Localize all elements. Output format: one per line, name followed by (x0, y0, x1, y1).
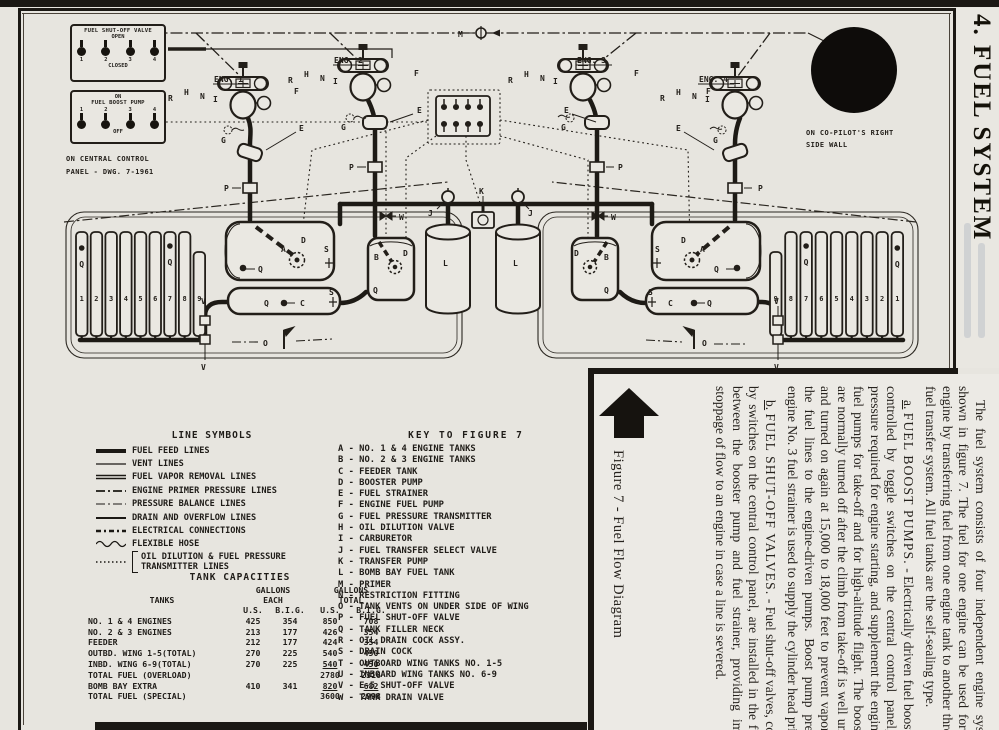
key-item: D - BOOSTER PUMP (338, 478, 594, 489)
toggle-knob (77, 120, 86, 129)
svg-text:N: N (200, 92, 205, 101)
balance-line-sample (96, 500, 126, 508)
primer-line-sample (96, 487, 126, 495)
svg-text:F: F (706, 87, 711, 96)
callout-Q: Q (714, 265, 719, 274)
svg-text:G: G (561, 123, 566, 132)
svg-text:3: 3 (109, 295, 113, 303)
legend-item: PRESSURE BALANCE LINES (96, 498, 328, 511)
svg-text:I: I (333, 77, 338, 86)
svg-text:P: P (618, 163, 623, 172)
callout-L: L (513, 259, 518, 268)
callout-Q: Q (707, 299, 712, 308)
callout-A: A (281, 245, 286, 254)
fuel-shutoff-valve-panel: FUEL SHUT-OFF VALVE OPEN 1 2 3 4 CLOSED (70, 24, 166, 82)
toggle-knob (126, 47, 135, 56)
engine-2-label: ENG. 2 (334, 56, 363, 65)
copilot-note-line2: SIDE WALL (806, 139, 894, 151)
shutoff-closed-label: CLOSED (108, 63, 127, 69)
capacities-row: TOTAL FUEL (OVERLOAD)27802316 (88, 670, 392, 681)
callout-S: S (655, 245, 660, 254)
legend-item: FUEL VAPOR REMOVAL LINES (96, 471, 328, 484)
svg-text:R: R (660, 94, 665, 103)
tank-capacities-table: TANK CAPACITIES GALLONS GALLONS TANKS EA… (88, 572, 392, 702)
legend-item: DRAIN AND OVERFLOW LINES (96, 511, 328, 524)
transmitter-line-sample (96, 558, 126, 566)
svg-text:G: G (341, 123, 346, 132)
vent-line-sample (96, 460, 126, 468)
callout-S: S (648, 288, 653, 297)
toggle-knob (150, 120, 159, 129)
capacities-title: TANK CAPACITIES (88, 572, 392, 583)
svg-text:G: G (221, 136, 226, 145)
right-wing-tanks (770, 232, 903, 336)
capacities-row: OUTBD. WING 1-5(TOTAL)270225540450 (88, 648, 392, 659)
engine-1-icon (218, 62, 271, 119)
boost-toggle-2: 2 (101, 106, 110, 129)
svg-text:H: H (676, 88, 681, 97)
capacities-row: NO. 1 & 4 ENGINES425354850708 (88, 616, 392, 627)
callout-V: V (774, 297, 779, 306)
callout-J: J (428, 209, 433, 218)
svg-text:Q: Q (167, 258, 172, 267)
primer-arrowhead (492, 30, 500, 37)
fuel-boost-pump-panel: ON FUEL BOOST PUMP 1 2 3 4 OFF (70, 90, 166, 144)
key-item: H - OIL DILUTION VALVE (338, 523, 594, 534)
engine-4-icon (710, 62, 763, 119)
callout-V: V (774, 363, 779, 372)
svg-text:4: 4 (850, 295, 854, 303)
callout-V: V (201, 363, 206, 372)
paragraph-shutoff-valves: b. FUEL SHUT-OFF VALVES. - Fuel shut-off… (712, 386, 778, 730)
svg-text:8: 8 (182, 295, 186, 303)
svg-text:Q: Q (895, 260, 900, 269)
tank-A-left (225, 222, 334, 280)
paragraph-intro: The fuel system consists of four indepen… (922, 386, 988, 730)
svg-text:5: 5 (138, 295, 142, 303)
svg-text:6: 6 (819, 295, 823, 303)
svg-text:R: R (168, 94, 173, 103)
svg-text:G: G (713, 136, 718, 145)
tank-C-left (228, 288, 340, 314)
callout-B: B (604, 253, 609, 262)
capacities-header-groups: TANKS EACH TOTAL (88, 595, 392, 605)
svg-text:Q: Q (804, 258, 809, 267)
copilot-note: ON CO-PILOT'S RIGHT SIDE WALL (806, 127, 894, 151)
callout-M: M (458, 30, 463, 39)
vapor-line-sample (96, 473, 126, 481)
transfer-control-box (428, 90, 500, 144)
engine-3-label: ENG. 3 (577, 56, 606, 65)
callout-O: O (263, 339, 268, 348)
key-item: J - FUEL TRANSFER SELECT VALVE (338, 546, 594, 557)
bracket-glyph (132, 551, 138, 573)
legend-item-oil-dilution: OIL DILUTION & FUEL PRESSURE TRANSMITTER… (96, 551, 328, 573)
callout-D: D (681, 236, 686, 245)
svg-text:7: 7 (804, 295, 808, 303)
rotated-text-quadrant: Figure 7 - Fuel Flow Diagram The fuel sy… (594, 374, 999, 730)
svg-text:F: F (294, 87, 299, 96)
capacities-row: BOMB BAY EXTRA410341820682 (88, 681, 392, 692)
toggle-knob (101, 47, 110, 56)
svg-text:N: N (540, 74, 545, 83)
svg-text:H: H (304, 70, 309, 79)
key-item: I - CARBURETOR (338, 534, 594, 545)
callout-W: W (611, 213, 616, 222)
panel-caption-line2: PANEL - DWG. 7-1961 (66, 166, 154, 179)
panel-caption-line1: ON CENTRAL CONTROL (66, 153, 154, 166)
oil-dilution-label: OIL DILUTION & FUEL PRESSURE TRANSMITTER… (141, 552, 286, 573)
figure-caption: Figure 7 - Fuel Flow Diagram (609, 450, 626, 638)
svg-text:N: N (692, 92, 697, 101)
key-item: E - FUEL STRAINER (338, 489, 594, 500)
svg-text:7: 7 (168, 295, 172, 303)
boost-toggle-1: 1 (77, 106, 86, 129)
key-item: G - FUEL PRESSURE TRANSMITTER (338, 512, 594, 523)
svg-text:I: I (213, 95, 218, 104)
primer-fitting (467, 26, 486, 40)
shutoff-toggle-4: 4 (150, 40, 159, 63)
callout-K: K (479, 187, 484, 196)
boost-toggle-4: 4 (150, 106, 159, 129)
svg-text:1: 1 (80, 295, 84, 303)
line-symbols-legend: LINE SYMBOLS FUEL FEED LINES VENT LINES … (96, 430, 328, 573)
boost-toggles: 1 2 3 4 (77, 106, 159, 129)
svg-text:Q: Q (79, 260, 84, 269)
engine-2-icon (338, 44, 391, 101)
manual-body-text: The fuel system consists of four indepen… (706, 386, 988, 730)
engine-4-label: ENG. 4 (699, 75, 728, 84)
callout-V: V (201, 297, 206, 306)
drain-line-sample (96, 514, 126, 522)
tank-A-right (652, 222, 761, 280)
key-item: A - NO. 1 & 4 ENGINE TANKS (338, 444, 594, 455)
svg-text:H: H (524, 70, 529, 79)
svg-text:P: P (758, 184, 763, 193)
callout-A: A (700, 245, 705, 254)
callout-Q: Q (264, 299, 269, 308)
callout-D: D (301, 236, 306, 245)
svg-text:I: I (705, 95, 710, 104)
callout-C: C (300, 299, 305, 308)
copilot-note-line1: ON CO-PILOT'S RIGHT (806, 127, 894, 139)
callout-D: D (403, 249, 408, 258)
callout-O: O (702, 339, 707, 348)
fuel-transfer-dial (811, 27, 897, 113)
shutoff-toggle-1: 1 (77, 40, 86, 63)
engine-3-icon (558, 44, 611, 101)
tank-vents-O (232, 327, 748, 349)
callout-S: S (324, 245, 329, 254)
svg-text:2: 2 (94, 295, 98, 303)
svg-text:N: N (320, 74, 325, 83)
toggle-knob (101, 120, 110, 129)
legend-title: LINE SYMBOLS (96, 430, 328, 441)
callout-Q: Q (258, 265, 263, 274)
svg-text:3: 3 (865, 295, 869, 303)
svg-text:F: F (634, 69, 639, 78)
toggle-knob (150, 47, 159, 56)
shutoff-toggle-2: 2 (101, 40, 110, 63)
key-item: B - NO. 2 & 3 ENGINE TANKS (338, 455, 594, 466)
key-item: K - TRANSFER PUMP (338, 557, 594, 568)
svg-text:1: 1 (895, 295, 899, 303)
key-title: KEY TO FIGURE 7 (338, 430, 594, 441)
scanned-manual-page: 4. FUEL SYSTEM (0, 0, 999, 730)
svg-text:R: R (508, 76, 513, 85)
svg-text:4: 4 (124, 295, 128, 303)
callout-L: L (443, 259, 448, 268)
left-wing-tanks (76, 232, 205, 336)
panel-caption: ON CENTRAL CONTROL PANEL - DWG. 7-1961 (66, 153, 154, 179)
tank-C-right (646, 288, 758, 314)
legend-item: ELECTRICAL CONNECTIONS (96, 524, 328, 537)
right-wing-tank-numbers: 98 76 54 32 1 (774, 295, 900, 303)
boost-off-label: OFF (113, 129, 123, 135)
toggle-knob (77, 47, 86, 56)
svg-text:E: E (676, 124, 681, 133)
svg-text:2: 2 (880, 295, 884, 303)
svg-text:5: 5 (834, 295, 838, 303)
callout-W: W (399, 213, 404, 222)
paragraph-boost-pumps: a. FUEL BOOST PUMPS. - Electrically driv… (784, 386, 916, 730)
capacities-header-units: U.S. B.I.G. U.S. B.I.G. (88, 605, 392, 616)
svg-text:F: F (414, 69, 419, 78)
svg-text:P: P (224, 184, 229, 193)
capacities-row: TOTAL FUEL (SPECIAL)36002998 (88, 691, 392, 702)
key-item: F - ENGINE FUEL PUMP (338, 500, 594, 511)
up-arrow-icon (596, 384, 662, 442)
legend-item: FUEL FEED LINES (96, 444, 328, 457)
legend-item: FLEXIBLE HOSE (96, 538, 328, 551)
bomb-bay-tanks (426, 225, 540, 314)
capacities-row: INBD. WING 6-9(TOTAL)270225540450 (88, 659, 392, 670)
left-wing-tank-numbers: 12 34 56 78 9 (80, 295, 202, 303)
key-item: C - FEEDER TANK (338, 467, 594, 478)
shutoff-toggle-3: 3 (126, 40, 135, 63)
capacities-row: FEEDER212177424354 (88, 637, 392, 648)
svg-text:I: I (553, 77, 558, 86)
feed-line-sample (96, 447, 126, 455)
shutoff-toggles: 1 2 3 4 (77, 40, 159, 63)
boost-toggle-3: 3 (126, 106, 135, 129)
callout-J: J (528, 209, 533, 218)
tank-B-right (572, 238, 618, 300)
legend-item: ENGINE PRIMER PRESSURE LINES (96, 484, 328, 497)
svg-text:H: H (184, 88, 189, 97)
svg-text:R: R (288, 76, 293, 85)
svg-text:6: 6 (153, 295, 157, 303)
flexible-hose-sample (96, 539, 126, 549)
svg-text:P: P (349, 163, 354, 172)
engine-1-label: ENG. 1 (214, 75, 243, 84)
svg-text:E: E (417, 106, 422, 115)
capacities-header-gallons: GALLONS GALLONS (88, 585, 392, 595)
callout-B: B (374, 253, 379, 262)
svg-text:E: E (564, 106, 569, 115)
toggle-knob (126, 120, 135, 129)
electrical-line-sample (96, 527, 126, 535)
callout-Q: Q (604, 286, 609, 295)
svg-text:8: 8 (789, 295, 793, 303)
capacities-row: NO. 2 & 3 ENGINES213177426354 (88, 627, 392, 638)
primer-pressure-lines (150, 33, 826, 76)
strainers-and-valves (236, 116, 748, 193)
callout-D: D (574, 249, 579, 258)
callout-C: C (668, 299, 673, 308)
svg-text:E: E (299, 124, 304, 133)
callout-S: S (329, 288, 334, 297)
callout-Q: Q (373, 286, 378, 295)
legend-item: VENT LINES (96, 457, 328, 470)
